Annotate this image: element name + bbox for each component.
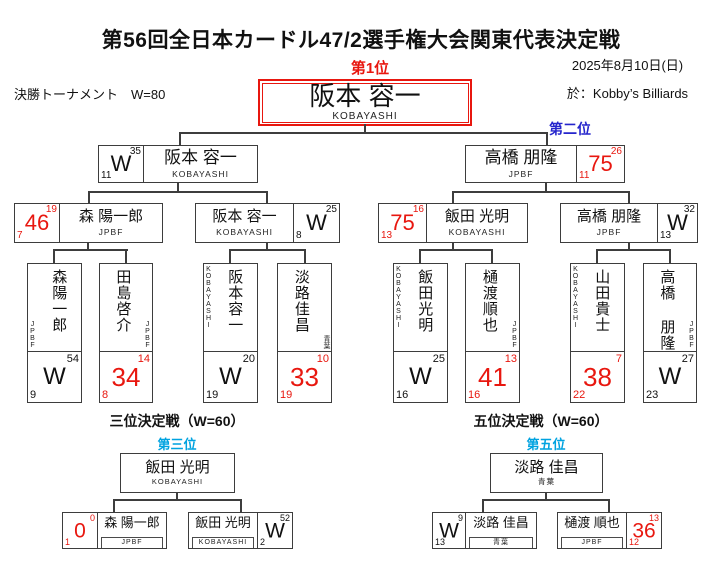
fifth-place-title: 五位決定戦（W=60） <box>441 411 641 431</box>
player-affiliation: JPBF <box>509 169 534 179</box>
connector-line <box>419 249 493 251</box>
player-name: 飯田光明 <box>417 269 432 333</box>
score-top: 7 <box>616 354 622 365</box>
score-top: 20 <box>243 354 255 365</box>
score-value: W <box>204 365 257 389</box>
connector-line <box>608 499 610 513</box>
player-affiliation: JPBF <box>688 321 695 349</box>
player-name: 淡路佳昌 <box>294 269 309 333</box>
player-affiliation: KOBAYASHI <box>395 266 402 329</box>
score-value: 41 <box>466 364 519 390</box>
connector-line <box>419 249 421 263</box>
score-value: W <box>28 365 81 389</box>
player-cell: 高橋 朋隆 JPBF <box>644 264 696 352</box>
score-bottom: 11 <box>101 171 111 181</box>
player-name: 森 陽一郎 <box>104 516 160 530</box>
connector-line <box>88 191 268 193</box>
rank1-label: 第1位 <box>325 57 415 78</box>
score-bottom: 13 <box>660 231 671 241</box>
player-cell: 森陽一郎 JPBF <box>28 264 81 352</box>
player-affiliation: KOBAYASHI <box>205 266 212 329</box>
player-name: 飯田 光明 <box>445 209 509 226</box>
player-name: 淡路 佳昌 <box>473 516 529 530</box>
score-bottom: 19 <box>206 390 218 401</box>
connector-line <box>179 132 181 145</box>
score-bottom: 7 <box>17 231 23 241</box>
score-cell: 14 34 8 <box>100 353 152 402</box>
semifinal-box-2: 阪本 容一 KOBAYASHI 25 W 8 <box>195 203 340 243</box>
score-bottom: 13 <box>435 538 445 547</box>
player-affiliation: JPBF <box>29 321 36 349</box>
score-bottom: 13 <box>381 231 392 241</box>
connector-line <box>88 191 90 203</box>
score-cell: 26 75 11 <box>576 146 624 182</box>
player-name: 飯田 光明 <box>195 516 251 530</box>
final-left-box: 35 W 11 阪本 容一 KOBAYASHI <box>98 145 258 183</box>
connector-line <box>266 191 268 203</box>
player-cell: 淡路 佳昌 青葉 <box>466 513 536 548</box>
player-name: 高橋 朋隆 <box>659 269 674 351</box>
player-name: 田島啓介 <box>115 269 130 333</box>
player-name: 山田貴士 <box>594 269 609 333</box>
fifth-place-winner-box: 淡路 佳昌 青葉 <box>490 453 603 493</box>
score-cell: 27 W 23 <box>644 353 696 402</box>
rank3-label: 第三位 <box>137 434 217 453</box>
connector-line <box>452 191 454 203</box>
player-name: 阪本 容一 <box>212 209 276 226</box>
third-place-box-2: 飯田 光明 KOBAYASHI 52 W 2 <box>188 512 293 549</box>
champion-box: 阪本 容一 KOBAYASHI <box>258 79 472 126</box>
quarterfinal-box-3: 阪本容一 KOBAYASHI 20 W 19 <box>203 263 258 403</box>
score-cell: 25 W 16 <box>394 353 447 402</box>
player-affiliation: JPBF <box>511 321 518 349</box>
player-cell: 飯田光明 KOBAYASHI <box>394 264 447 352</box>
score-cell: 20 W 19 <box>204 353 257 402</box>
player-cell: 高橋 朋隆 JPBF <box>561 204 657 242</box>
score-value: W <box>644 365 696 389</box>
player-cell: 阪本 容一 KOBAYASHI <box>144 146 257 182</box>
score-cell: 19 46 7 <box>15 204 60 242</box>
date-label: 2025年8月10日(日) <box>550 55 705 74</box>
quarterfinal-box-4: 淡路佳昌 青葉 10 33 19 <box>277 263 332 403</box>
player-affiliation: KOBAYASHI <box>152 477 203 486</box>
connector-line <box>452 191 630 193</box>
score-bottom: 23 <box>646 390 658 401</box>
connector-line <box>482 499 610 501</box>
connector-line <box>229 249 306 251</box>
score-bottom: 2 <box>260 538 265 547</box>
player-affiliation: JPBF <box>144 321 151 349</box>
player-affiliation: 青葉 <box>538 477 555 486</box>
score-cell: 7 38 22 <box>571 353 624 402</box>
connector-line <box>482 499 484 513</box>
connector-line <box>53 249 55 263</box>
score-bottom: 11 <box>579 171 589 181</box>
champion-box-inner: 阪本 容一 KOBAYASHI <box>262 83 469 123</box>
player-cell: 淡路佳昌 青葉 <box>278 264 331 352</box>
player-affiliation: KOBAYASHI <box>216 227 273 237</box>
score-value: 38 <box>571 364 624 390</box>
semifinal-box-4: 高橋 朋隆 JPBF 32 W 13 <box>560 203 698 243</box>
score-bottom: 9 <box>30 390 36 401</box>
score-bottom: 16 <box>468 390 480 401</box>
page-title: 第56回全日本カードル47/2選手権大会関東代表決定戦 <box>0 24 722 54</box>
fifth-place-box-2: 樋渡 順也 JPBF 13 36 12 <box>557 512 662 549</box>
score-top: 54 <box>67 354 79 365</box>
score-cell: 32 W 13 <box>657 204 697 242</box>
player-affiliation: KOBAYASHI <box>172 169 229 179</box>
score-cell: 16 75 13 <box>379 204 427 242</box>
player-name: 阪本 容一 <box>164 149 237 168</box>
player-cell: 樋渡順也 JPBF <box>466 264 519 352</box>
score-cell: 52 W 2 <box>257 513 292 548</box>
connector-line <box>113 499 242 501</box>
champion-affiliation: KOBAYASHI <box>332 111 397 122</box>
player-cell: 飯田 光明 KOBAYASHI <box>427 204 527 242</box>
tournament-bracket-sheet: 第56回全日本カードル47/2選手権大会関東代表決定戦 決勝トーナメント W=8… <box>0 0 722 570</box>
quarterfinal-box-6: 樋渡順也 JPBF 13 41 16 <box>465 263 520 403</box>
score-cell: 13 41 16 <box>466 353 519 402</box>
score-bottom: 22 <box>573 390 585 401</box>
player-affiliation: JPBF <box>561 537 623 548</box>
connector-line <box>596 249 598 263</box>
quarterfinal-box-5: 飯田光明 KOBAYASHI 25 W 16 <box>393 263 448 403</box>
connector-line <box>240 499 242 513</box>
score-bottom: 16 <box>396 390 408 401</box>
score-top: 27 <box>682 354 694 365</box>
score-bottom: 1 <box>65 538 70 547</box>
connector-line <box>125 249 127 263</box>
score-bottom: 19 <box>280 390 292 401</box>
score-cell: 9 W 13 <box>433 513 466 548</box>
player-name: 淡路 佳昌 <box>514 460 578 477</box>
stage-label: 決勝トーナメント W=80 <box>14 84 165 103</box>
player-name: 高橋 朋隆 <box>485 149 558 168</box>
score-value: W <box>394 365 447 389</box>
score-top: 25 <box>433 354 445 365</box>
score-cell: 25 W 8 <box>293 204 339 242</box>
player-cell: 淡路 佳昌 青葉 <box>491 454 602 492</box>
player-cell: 森 陽一郎 JPBF <box>60 204 162 242</box>
connector-line <box>113 499 115 513</box>
third-place-winner-box: 飯田 光明 KOBAYASHI <box>120 453 235 493</box>
connector-line <box>179 132 548 134</box>
player-cell: 飯田 光明 KOBAYASHI <box>189 513 257 548</box>
fifth-place-box-1: 9 W 13 淡路 佳昌 青葉 <box>432 512 537 549</box>
player-cell: 阪本容一 KOBAYASHI <box>204 264 257 352</box>
player-name: 飯田 光明 <box>145 460 209 477</box>
score-value: 34 <box>100 364 152 390</box>
final-right-box: 高橋 朋隆 JPBF 26 75 11 <box>465 145 625 183</box>
score-cell: 13 36 12 <box>626 513 661 548</box>
score-value: 33 <box>278 364 331 390</box>
player-affiliation: 青葉 <box>469 537 533 548</box>
player-cell: 山田貴士 KOBAYASHI <box>571 264 624 352</box>
connector-line <box>596 249 671 251</box>
semifinal-box-1: 19 46 7 森 陽一郎 JPBF <box>14 203 163 243</box>
champion-name: 阪本 容一 <box>309 83 420 109</box>
player-name: 樋渡順也 <box>482 269 497 333</box>
player-name: 森 陽一郎 <box>79 209 143 226</box>
rank5-label: 第五位 <box>506 434 586 453</box>
player-affiliation: JPBF <box>99 227 124 237</box>
semifinal-box-3: 16 75 13 飯田 光明 KOBAYASHI <box>378 203 528 243</box>
score-bottom: 8 <box>296 231 302 241</box>
score-cell: 54 W 9 <box>28 353 81 402</box>
quarterfinal-box-7: 山田貴士 KOBAYASHI 7 38 22 <box>570 263 625 403</box>
player-affiliation: 青葉 <box>323 335 330 349</box>
score-bottom: 12 <box>629 538 639 547</box>
score-cell: 0 0 1 <box>63 513 98 548</box>
player-affiliation: JPBF <box>101 537 163 548</box>
third-place-box-1: 0 0 1 森 陽一郎 JPBF <box>62 512 167 549</box>
player-affiliation: KOBAYASHI <box>192 537 254 548</box>
connector-line <box>229 249 231 263</box>
venue-label: 於：Kobby’s Billiards <box>550 83 705 102</box>
score-bottom: 8 <box>102 390 108 401</box>
connector-line <box>546 132 548 145</box>
player-affiliation: KOBAYASHI <box>449 227 506 237</box>
player-cell: 高橋 朋隆 JPBF <box>466 146 576 182</box>
connector-line <box>304 249 306 263</box>
player-name: 森陽一郎 <box>51 269 66 333</box>
player-affiliation: KOBAYASHI <box>572 266 579 329</box>
third-place-title: 三位決定戦（W=60） <box>77 411 277 431</box>
player-cell: 樋渡 順也 JPBF <box>558 513 626 548</box>
player-cell: 森 陽一郎 JPBF <box>98 513 166 548</box>
connector-line <box>628 191 630 203</box>
player-name: 高橋 朋隆 <box>577 209 641 226</box>
connector-line <box>669 249 671 263</box>
connector-line <box>53 249 128 251</box>
player-cell: 田島啓介 JPBF <box>100 264 152 352</box>
player-name: 阪本容一 <box>227 269 242 333</box>
player-name: 樋渡 順也 <box>564 516 620 530</box>
quarterfinal-box-1: 森陽一郎 JPBF 54 W 9 <box>27 263 82 403</box>
player-affiliation: JPBF <box>597 227 622 237</box>
quarterfinal-box-2: 田島啓介 JPBF 14 34 8 <box>99 263 153 403</box>
player-cell: 飯田 光明 KOBAYASHI <box>121 454 234 492</box>
player-cell: 阪本 容一 KOBAYASHI <box>196 204 293 242</box>
score-cell: 10 33 19 <box>278 353 331 402</box>
score-cell: 35 W 11 <box>99 146 144 182</box>
connector-line <box>491 249 493 263</box>
quarterfinal-box-8: 高橋 朋隆 JPBF 27 W 23 <box>643 263 697 403</box>
